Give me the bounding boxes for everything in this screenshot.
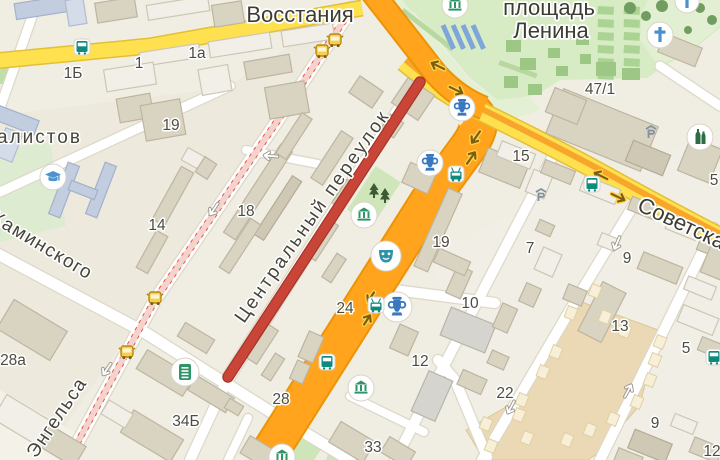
svg-text:1а: 1а bbox=[188, 45, 206, 62]
svg-text:28а: 28а bbox=[0, 352, 26, 369]
svg-text:12: 12 bbox=[703, 443, 720, 460]
svg-text:19: 19 bbox=[162, 117, 179, 134]
svg-text:алистов: алистов bbox=[0, 127, 82, 148]
svg-text:площадь: площадь bbox=[503, 0, 595, 20]
svg-text:1Б: 1Б bbox=[64, 65, 83, 82]
svg-text:Ленина: Ленина bbox=[513, 18, 589, 43]
svg-text:9: 9 bbox=[651, 415, 660, 432]
svg-text:34Б: 34Б bbox=[172, 413, 199, 430]
svg-text:24: 24 bbox=[336, 300, 354, 317]
svg-text:47/1: 47/1 bbox=[585, 81, 615, 98]
svg-text:33: 33 bbox=[364, 439, 381, 456]
svg-text:12: 12 bbox=[411, 353, 428, 370]
svg-text:7: 7 bbox=[526, 240, 535, 257]
svg-text:Восстания: Восстания bbox=[246, 2, 353, 27]
svg-text:14: 14 bbox=[148, 217, 166, 234]
svg-text:5: 5 bbox=[710, 172, 719, 189]
svg-text:28: 28 bbox=[272, 391, 289, 408]
svg-text:10: 10 bbox=[461, 295, 479, 312]
svg-text:1: 1 bbox=[135, 55, 144, 72]
svg-text:13: 13 bbox=[611, 318, 628, 335]
svg-text:19: 19 bbox=[432, 234, 449, 251]
svg-text:9: 9 bbox=[623, 250, 632, 267]
svg-text:15: 15 bbox=[512, 148, 529, 165]
svg-text:5: 5 bbox=[682, 340, 691, 357]
svg-text:18: 18 bbox=[237, 203, 254, 220]
svg-text:22: 22 bbox=[496, 385, 513, 402]
